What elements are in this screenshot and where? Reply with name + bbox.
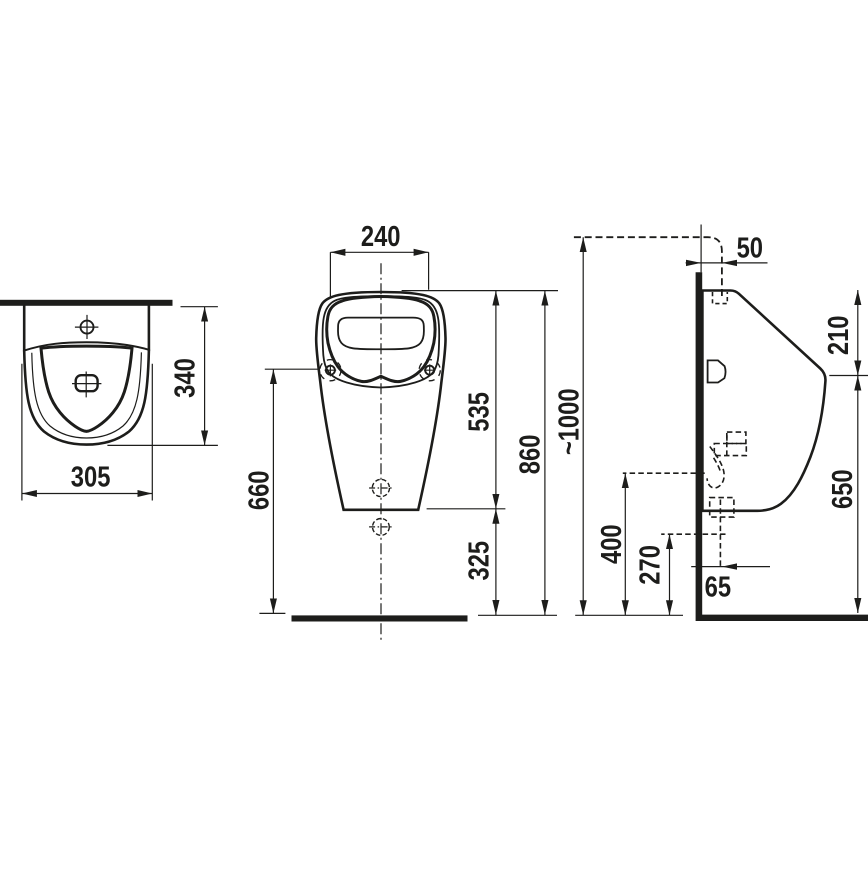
svg-text:~1000: ~1000	[552, 388, 585, 455]
svg-text:305: 305	[71, 460, 111, 493]
svg-text:660: 660	[242, 470, 275, 510]
svg-text:270: 270	[633, 545, 666, 585]
svg-text:650: 650	[826, 469, 859, 509]
svg-text:340: 340	[168, 358, 201, 398]
svg-text:400: 400	[595, 524, 628, 564]
svg-text:535: 535	[462, 392, 495, 432]
svg-text:325: 325	[462, 541, 495, 581]
svg-text:240: 240	[361, 220, 401, 253]
svg-text:860: 860	[513, 435, 546, 475]
svg-text:65: 65	[705, 570, 731, 603]
svg-text:50: 50	[737, 231, 763, 264]
svg-text:210: 210	[822, 315, 855, 355]
